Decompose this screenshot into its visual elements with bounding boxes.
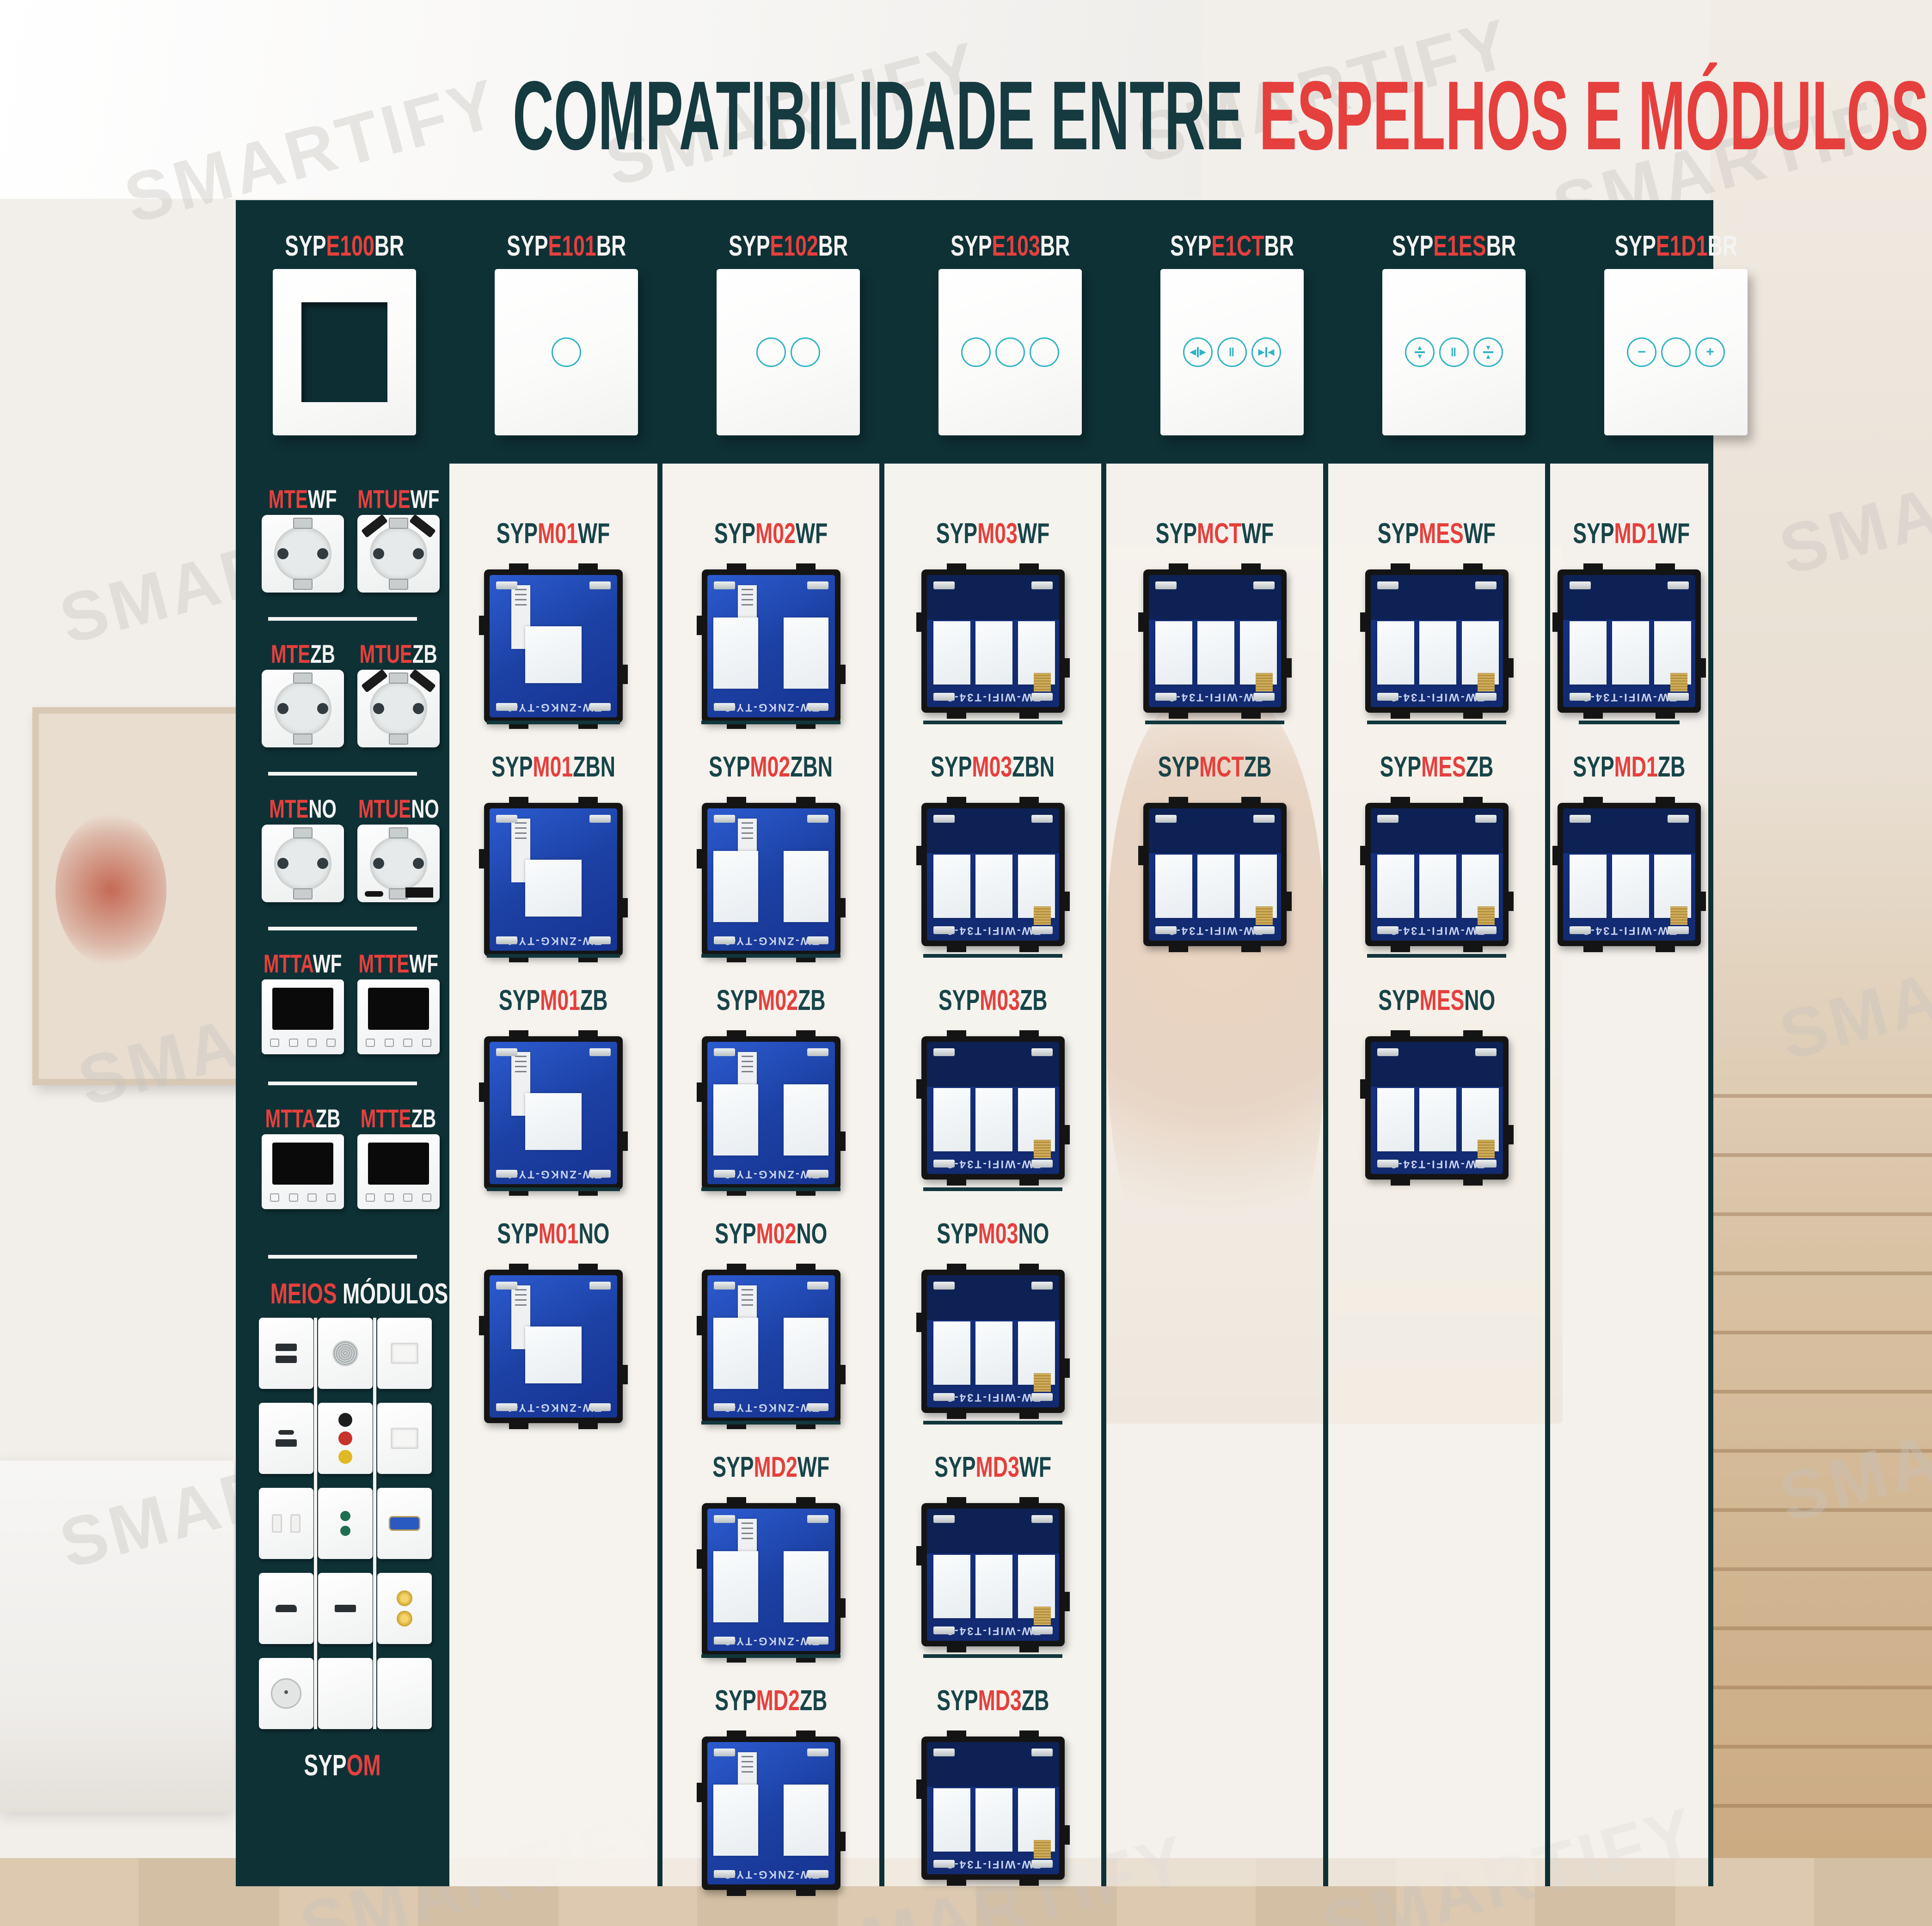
mounting-clip [1475,1048,1497,1056]
module-pcb: TW-WIFI-T34-3 [1371,575,1503,707]
mounting-clip [1155,815,1177,823]
socket-pin-hole [317,858,328,869]
module-image-SYPM03ZBN: TW-WIFI-T34-3 [921,803,1065,946]
sidebar-item-MTTEZB: MTTEZB [338,1104,459,1133]
mounting-clip [1377,815,1398,823]
column-separator [1101,464,1106,1886]
earth-clip [389,734,408,745]
thermostat-screen [368,988,429,1030]
wifi-chip [1034,1140,1051,1158]
meios-tile-speaker-grille [318,1318,373,1389]
touch-pad [784,851,828,922]
module-pcb: TW-ZNKG-TY-1 [490,808,617,951]
mounting-clip [933,581,955,589]
module-label-SYPMD3WF: SYPMD3WF [884,1451,1101,1484]
touch-pad [1419,621,1456,685]
row-divider [923,1421,1062,1425]
MTUEZB-socket-image [357,670,440,747]
meios-tile-usb-single [318,1573,373,1644]
module-pcb: TW-WIFI-T34-3 [1563,808,1695,941]
touch-button-row [717,337,860,367]
module-label-SYPMCTWF: SYPMCTWF [1106,518,1323,550]
mounting-clip [1377,1048,1398,1056]
meios-tile-socket-2pin [259,1488,313,1559]
column-separator [1545,464,1550,1886]
mounting-clip [1031,1048,1053,1056]
mounting-clip [933,1048,955,1056]
touch-pad [784,1084,828,1156]
wifi-chip [1670,673,1687,691]
usb-a-port-icon [405,887,433,898]
module-label-SYPM01ZBN: SYPM01ZBN [449,751,657,783]
module-pcb: TW-WIFI-T34-3 [927,1042,1059,1174]
row-divider [923,721,1062,724]
mounting-clip [807,1870,828,1878]
mounting-clip [589,936,611,944]
thermostat-screen [272,1143,333,1185]
touch-pad [975,1555,1012,1618]
mounting-clip [714,936,735,944]
mounting-clip [807,703,828,711]
mirror-label-SYPE102BR: SYPE102BR [687,230,890,263]
module-image-SYPM01WF: TW-ZNKG-TY-1 [484,569,623,723]
socket-pin-hole [373,858,384,869]
touch-pad [713,851,758,922]
module-pcb: TW-ZNKG-TY-1 [490,575,617,717]
mounting-clip [1031,1515,1053,1523]
touch-pad [933,1788,970,1852]
row-divider [701,954,840,958]
blank-touch-icon [995,337,1025,367]
mounting-clip [589,1170,611,1178]
touch-pad [1570,621,1607,685]
mounting-clip [1377,926,1398,934]
module-pcb: TW-WIFI-T34-3 [927,808,1059,941]
touch-pad [525,1093,581,1150]
mounting-clip [1475,581,1497,589]
earth-clip [293,673,313,684]
socket-pin-hole [413,703,424,714]
touch-pad [713,618,758,689]
module-pcb: TW-ZNKG-TY-2 [707,1042,835,1184]
mounting-clip [933,1160,955,1168]
mirror-label-SYPE100BR: SYPE100BR [243,230,446,263]
row-divider [701,1654,840,1658]
touch-pad [1377,621,1414,685]
row-divider [923,1654,1062,1658]
touch-button-row [495,337,638,367]
mounting-clip [714,581,735,589]
module-pcb: TW-WIFI-T34-3 [927,1742,1059,1874]
meios-tile-hdmi [259,1573,313,1644]
meios-tile-keystone-blank-2 [377,1403,432,1474]
shutter-up-touch-icon: ▲▼ [1405,337,1435,367]
module-pcb: TW-WIFI-T34-3 [927,575,1059,707]
touch-pad [525,1327,581,1383]
mounting-clip [1031,926,1053,934]
thermostat-screen [272,988,333,1030]
module-image-SYPM03NO: TW-WIFI-T34-3 [921,1270,1065,1413]
column-separator [657,464,662,1886]
earth-clip [293,518,313,529]
mounting-clip [933,926,955,934]
curtain-close-touch-icon: ▶◀ [1251,337,1281,367]
touch-pad [1377,1088,1414,1151]
touch-pad [713,1084,758,1156]
MTTAWF-thermostat-image [262,979,344,1054]
mirror-label-SYPE103BR: SYPE103BR [908,230,1112,263]
socket-pin-hole [373,703,384,714]
module-label-SYPM02WF: SYPM02WF [662,518,879,550]
mounting-clip [1377,1160,1398,1168]
mounting-clip [1570,926,1591,934]
module-pcb: TW-WIFI-T34-3 [927,1275,1059,1407]
module-label-SYPMESWF: SYPMESWF [1328,518,1545,550]
mounting-clip [933,1860,955,1868]
mirror-panel-SYPE100BR [273,269,416,435]
module-pcb: TW-WIFI-T34-3 [927,1509,1059,1641]
module-image-SYPMCTWF: TW-WIFI-T34-3 [1143,569,1287,713]
mirror-label-SYPE1CTBR: SYPE1CTBR [1130,230,1334,263]
sidebar-divider [268,1082,417,1085]
thermostat-touch-icons [270,1039,336,1047]
mounting-clip [933,1282,955,1290]
module-label-SYPMESNO: SYPMESNO [1328,984,1545,1017]
module-pcb: TW-WIFI-T34-3 [1149,575,1281,707]
mounting-clip [807,936,828,944]
mounting-clip [807,1048,828,1056]
earth-clip [389,518,408,529]
earth-clip [293,579,313,590]
usb-c-port-icon [365,891,383,897]
mounting-clip [1031,1749,1053,1756]
MTTEZB-thermostat-image [357,1134,440,1209]
earth-clip [293,734,313,745]
touch-pad [1197,855,1234,918]
touch-pad [525,626,581,683]
mounting-clip [589,1282,611,1290]
mounting-clip [589,1048,611,1056]
socket-pin-hole [373,548,384,559]
touch-pad [1377,855,1414,918]
mounting-clip [807,1403,828,1411]
touch-pad [1419,855,1456,918]
mounting-clip [1031,815,1053,823]
shutter-down-touch-icon: ▼▲ [1473,337,1503,367]
touch-pad [933,621,970,685]
socket-pin-hole [413,858,424,869]
touch-pad [784,618,828,689]
sypom-label: SYPOM [236,1749,449,1782]
touch-pad [975,855,1012,918]
sidebar-divider [268,617,417,621]
title-red-part: ESPELHOS E MÓDULOS [1259,61,1928,170]
mounting-clip [1668,815,1689,823]
module-image-SYPM01ZB: TW-ZNKG-TY-1 [484,1036,623,1190]
module-image-SYPMCTZB: TW-WIFI-T34-3 [1143,803,1287,946]
column-separator [1323,464,1328,1886]
row-divider [923,1187,1062,1191]
mirror-panel-SYPE1ESBR: ▲▼‖▼▲ [1382,269,1526,435]
mounting-clip [933,1749,955,1756]
mounting-clip [1668,926,1689,934]
mounting-clip [714,1403,735,1411]
touch-button-row: −+ [1604,337,1748,367]
module-image-SYPM01NO: TW-ZNKG-TY-1 [484,1270,623,1423]
wifi-chip [1034,1607,1051,1625]
MTUENO-socket-image [357,825,440,902]
touch-button-row: ◀▶‖▶◀ [1160,337,1304,367]
meios-grid-separator [314,1318,317,1729]
row-divider [701,1421,840,1425]
mounting-clip [933,693,955,701]
sidebar-divider [268,1255,417,1259]
mounting-clip [1253,926,1275,934]
compatibility-infographic: SMARTIFYSMARTIFYSMARTIFYSMARTIFYSMARTIFY… [0,0,1932,1926]
earth-clip [389,673,408,684]
touch-pad [975,1788,1012,1852]
meios-tile-rca-trio [318,1403,373,1474]
module-label-SYPM01ZB: SYPM01ZB [449,984,657,1017]
earth-clip [389,579,408,590]
touch-pad [975,1088,1012,1151]
earth-clip [389,827,408,838]
mounting-clip [1031,1626,1053,1634]
module-image-SYPMESWF: TW-WIFI-T34-3 [1365,569,1509,713]
mounting-clip [496,581,517,589]
module-image-SYPMD1ZB: TW-WIFI-T34-3 [1558,803,1701,946]
module-label-SYPM01WF: SYPM01WF [449,518,657,550]
mounting-clip [496,1170,517,1178]
module-image-SYPMESZB: TW-WIFI-T34-3 [1365,803,1509,946]
touch-pad [713,1551,758,1622]
module-label-SYPMD1WF: SYPMD1WF [1550,518,1708,550]
row-divider [701,1187,840,1191]
module-label-SYPMESZB: SYPMESZB [1328,751,1545,783]
MTEZB-socket-image [262,670,344,747]
row-divider [1145,721,1284,724]
curtain-open-touch-icon: ◀▶ [1183,337,1213,367]
mirror-panel-SYPE103BR [938,269,1082,435]
mounting-clip [589,815,611,823]
meios-tile-usb-c-and-a [259,1403,313,1474]
mounting-clip [1253,581,1275,589]
wifi-chip [1256,906,1273,925]
meios-tile-keystone-blank [377,1318,432,1389]
mirror-panel-SYPE102BR [717,269,860,435]
blank-touch-icon [1661,337,1691,367]
row-divider [487,954,620,958]
earth-clip [293,888,313,899]
mounting-clip [807,581,828,589]
module-image-SYPM02ZB: TW-ZNKG-TY-2 [702,1036,840,1190]
mirror-panel-SYPE1D1BR: −+ [1604,269,1748,435]
touch-pad [933,1555,970,1618]
module-label-SYPMD2WF: SYPMD2WF [662,1451,879,1484]
meios-tile-f-connector-pair [377,1573,432,1644]
mounting-clip [1155,581,1177,589]
module-pcb: TW-ZNKG-TY-2 [707,1509,835,1651]
row-divider [1367,721,1506,724]
mounting-clip [933,1393,955,1401]
mounting-clip [1475,693,1497,701]
row-divider [701,721,840,724]
wifi-chip [1034,906,1051,925]
module-image-SYPMD1WF: TW-WIFI-T34-3 [1558,569,1701,713]
module-label-SYPM02ZBN: SYPM02ZBN [662,751,879,783]
mounting-clip [496,1403,517,1411]
mounting-clip [1031,1160,1053,1168]
touch-pad [933,855,970,918]
module-pcb: TW-ZNKG-TY-2 [707,808,835,951]
mounting-clip [714,1515,735,1523]
mounting-clip [933,1626,955,1634]
touch-pad [1612,621,1649,685]
mounting-clip [807,815,828,823]
mounting-clip [807,1637,828,1645]
mounting-clip [1253,815,1275,823]
wifi-chip [1478,906,1495,925]
socket-pin-hole [317,703,328,714]
mounting-clip [496,936,517,944]
thermostat-touch-icons [366,1193,431,1202]
row-divider [1367,954,1506,958]
module-pcb: TW-ZNKG-TY-1 [490,1042,617,1184]
mounting-clip [933,815,955,823]
mounting-clip [714,1870,735,1878]
touch-pad [1419,1088,1456,1151]
touch-pad [713,1318,758,1389]
module-pcb: TW-WIFI-T34-3 [1563,575,1695,707]
blank-touch-icon [756,337,786,367]
module-label-SYPM03ZB: SYPM03ZB [884,984,1101,1017]
module-label-SYPM01NO: SYPM01NO [449,1218,657,1250]
module-image-SYPM03ZB: TW-WIFI-T34-3 [921,1036,1065,1180]
mounting-clip [589,581,611,589]
blank-touch-icon [1030,337,1059,367]
module-image-SYPM02WF: TW-ZNKG-TY-2 [702,569,840,723]
module-pcb: TW-ZNKG-TY-2 [707,1742,835,1884]
touch-pad [975,621,1012,685]
socket-pin-hole [277,703,288,714]
mounting-clip [714,1048,735,1056]
MTEWF-socket-image [262,515,344,593]
module-label-SYPM02NO: SYPM02NO [662,1218,879,1250]
mounting-clip [1475,926,1497,934]
module-image-SYPM02NO: TW-ZNKG-TY-2 [702,1270,840,1423]
mounting-clip [714,703,735,711]
background-painting-detail [55,813,166,966]
MTUEWF-socket-image [357,515,440,593]
module-image-SYPMD3WF: TW-WIFI-T34-3 [921,1503,1065,1646]
mounting-clip [714,1749,735,1756]
column-separator [879,464,884,1886]
touch-pad [1612,855,1649,918]
MTENO-socket-image [262,825,344,902]
module-label-SYPM03ZBN: SYPM03ZBN [884,751,1101,783]
module-image-SYPMESNO: TW-WIFI-T34-3 [1365,1036,1509,1180]
meios-tile-vga [377,1488,432,1559]
mounting-clip [714,1637,735,1645]
pause-touch-icon: ‖ [1439,337,1469,367]
meios-modulos-heading: MEIOS MÓDULOS [236,1278,449,1310]
wifi-chip [1034,1373,1051,1392]
mounting-clip [1377,693,1398,701]
blank-touch-icon [552,337,581,367]
meios-tile-blank [377,1658,432,1729]
mounting-clip [1031,1282,1053,1290]
module-image-SYPMD2ZB: TW-ZNKG-TY-2 [702,1736,840,1890]
mounting-clip [807,1515,828,1523]
touch-button-row [938,337,1082,367]
wifi-chip [1034,1840,1051,1859]
mounting-clip [1668,581,1689,589]
socket-pin-hole [277,548,288,559]
mounting-clip [1570,693,1591,701]
module-pcb: TW-WIFI-T34-3 [1371,808,1503,941]
meios-grid-separator [373,1318,376,1729]
module-pcb: TW-ZNKG-TY-1 [490,1275,617,1418]
module-label-SYPM02ZB: SYPM02ZB [662,984,879,1017]
meios-tile-audio-jack-pair [318,1488,373,1559]
module-pcb: TW-ZNKG-TY-2 [707,1275,835,1418]
mounting-clip [714,1170,735,1178]
thermostat-screen [368,1143,429,1185]
mirror-label-SYPE1ESBR: SYPE1ESBR [1352,230,1556,263]
mounting-clip [496,1282,517,1290]
mounting-clip [1155,926,1177,934]
row-divider [487,1187,620,1191]
mounting-clip [1031,693,1053,701]
touch-pad [1570,855,1607,918]
module-image-SYPM02ZBN: TW-ZNKG-TY-2 [702,803,840,956]
mounting-clip [496,1048,517,1056]
module-image-SYPM03WF: TW-WIFI-T34-3 [921,569,1065,713]
mirror-label-SYPE1D1BR: SYPE1D1BR [1574,230,1778,263]
dim-minus-touch-icon: − [1627,337,1656,367]
touch-pad [525,860,581,917]
touch-pad [933,1321,970,1385]
mounting-clip [807,1170,828,1178]
sidebar-item-MTUEZB: MTUEZB [338,639,459,669]
socket-pin-hole [277,858,288,869]
touch-pad [784,1785,828,1856]
module-image-SYPM01ZBN: TW-ZNKG-TY-1 [484,803,623,956]
frame-cutout [301,302,387,402]
mounting-clip [933,1515,955,1523]
sidebar-item-MTUENO: MTUENO [338,794,459,824]
MTTEWF-thermostat-image [357,979,440,1054]
earth-clip [293,827,313,838]
row-divider [487,721,620,724]
mounting-clip [1570,581,1591,589]
mirror-label-SYPE101BR: SYPE101BR [465,230,668,263]
mounting-clip [589,1403,611,1411]
socket-pin-hole [413,548,424,559]
wifi-chip [1256,673,1273,691]
touch-pad [1155,855,1192,918]
touch-pad [1155,621,1192,685]
MTTAZB-thermostat-image [262,1134,344,1209]
module-pcb: TW-WIFI-T34-3 [1149,808,1281,941]
touch-button-row: ▲▼‖▼▲ [1382,337,1526,367]
module-label-SYPM03WF: SYPM03WF [884,518,1101,550]
module-pcb: TW-ZNKG-TY-2 [707,575,835,717]
dim-plus-touch-icon: + [1695,337,1725,367]
module-image-SYPMD3ZB: TW-WIFI-T34-3 [921,1736,1065,1880]
touch-pad [784,1318,828,1389]
mounting-clip [1155,693,1177,701]
